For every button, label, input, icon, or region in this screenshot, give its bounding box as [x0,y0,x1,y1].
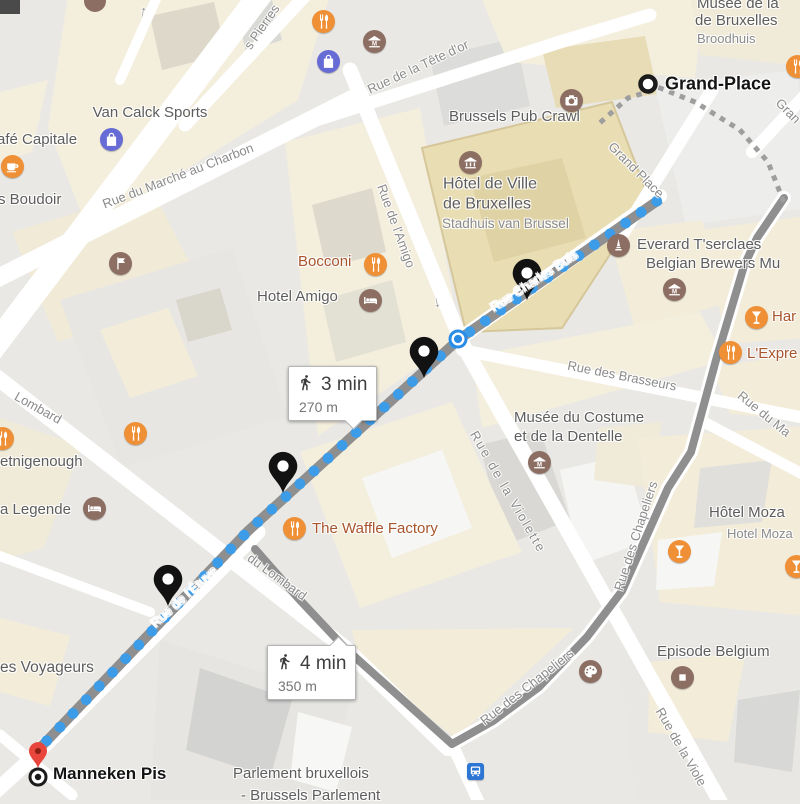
restaurant-icon[interactable] [719,341,742,364]
monument-icon[interactable] [607,234,630,257]
restaurant-icon[interactable] [312,10,335,33]
shopping-icon[interactable] [100,128,123,151]
museum_m-icon[interactable]: M [363,30,386,53]
coffee-icon[interactable] [1,155,24,178]
museum_m-icon[interactable]: M [528,451,551,474]
museum_col-icon[interactable] [459,151,482,174]
restaurant-icon[interactable] [124,422,147,445]
attraction-icon[interactable] [109,252,132,275]
restaurant-icon[interactable] [364,253,387,276]
restaurant-icon[interactable] [0,427,14,450]
bed-icon[interactable] [83,497,106,520]
restaurant-icon[interactable] [786,55,800,78]
walk-time: 4 min [300,653,346,675]
walk-time: 3 min [321,374,367,396]
bed-icon[interactable] [359,289,382,312]
pedestrian-icon [276,651,293,677]
svg-text:M: M [671,289,676,295]
transit-stop-icon[interactable] [448,329,468,349]
poi-layer: MMM [0,0,800,800]
svg-text:M: M [371,41,376,47]
svg-text:M: M [536,462,541,468]
restaurant-icon[interactable] [283,517,306,540]
walk-distance: 270 m [299,399,367,415]
bar-icon[interactable] [745,306,768,329]
pedestrian-icon [297,372,314,398]
bar-icon[interactable] [785,555,800,578]
walk-time-badge-3min[interactable]: 3 min 270 m [288,366,377,421]
walk-time-badge-4min[interactable]: 4 min 350 m [267,645,356,700]
camera-icon[interactable] [560,89,583,112]
shopping-icon[interactable] [317,50,340,73]
bar-icon[interactable] [668,540,691,563]
palette-icon[interactable] [579,660,602,683]
map-app: { "map": { "markers": { "start": {"label… [0,0,800,800]
walk-distance: 350 m [278,678,346,694]
bus-station-icon[interactable] [467,763,484,780]
store-icon[interactable] [671,666,694,689]
museum_m-icon[interactable]: M [663,278,686,301]
